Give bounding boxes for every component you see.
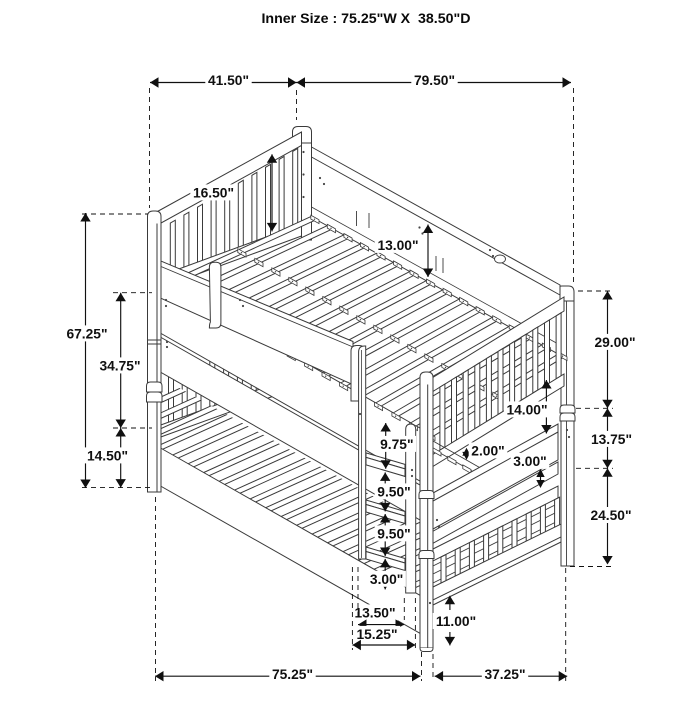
- svg-text:15.25": 15.25": [356, 627, 397, 642]
- svg-text:75.25": 75.25": [272, 667, 313, 682]
- svg-text:13.50": 13.50": [354, 606, 395, 621]
- svg-text:79.50": 79.50": [414, 73, 455, 88]
- svg-text:9.50": 9.50": [377, 485, 410, 500]
- svg-text:3.00": 3.00": [370, 572, 403, 587]
- svg-text:13.75": 13.75": [591, 432, 632, 447]
- svg-text:29.00": 29.00": [594, 335, 635, 350]
- svg-text:14.00": 14.00": [506, 403, 547, 418]
- svg-text:67.25": 67.25": [66, 327, 107, 342]
- svg-text:Inner Size : 75.25"W X 38.50": Inner Size : 75.25"W X 38.50"D: [261, 11, 470, 27]
- svg-text:13.00": 13.00": [377, 238, 418, 253]
- svg-text:16.50": 16.50": [193, 186, 234, 201]
- svg-text:2.00": 2.00": [471, 444, 504, 459]
- svg-text:11.00": 11.00": [436, 614, 476, 629]
- svg-text:24.50": 24.50": [590, 508, 631, 523]
- svg-text:9.50": 9.50": [377, 527, 410, 542]
- svg-text:9.75": 9.75": [380, 437, 413, 452]
- svg-text:14.50": 14.50": [87, 449, 128, 464]
- svg-text:41.50": 41.50": [208, 73, 249, 88]
- svg-text:34.75": 34.75": [99, 359, 140, 374]
- svg-text:3.00": 3.00": [513, 454, 546, 469]
- svg-text:37.25": 37.25": [484, 667, 525, 682]
